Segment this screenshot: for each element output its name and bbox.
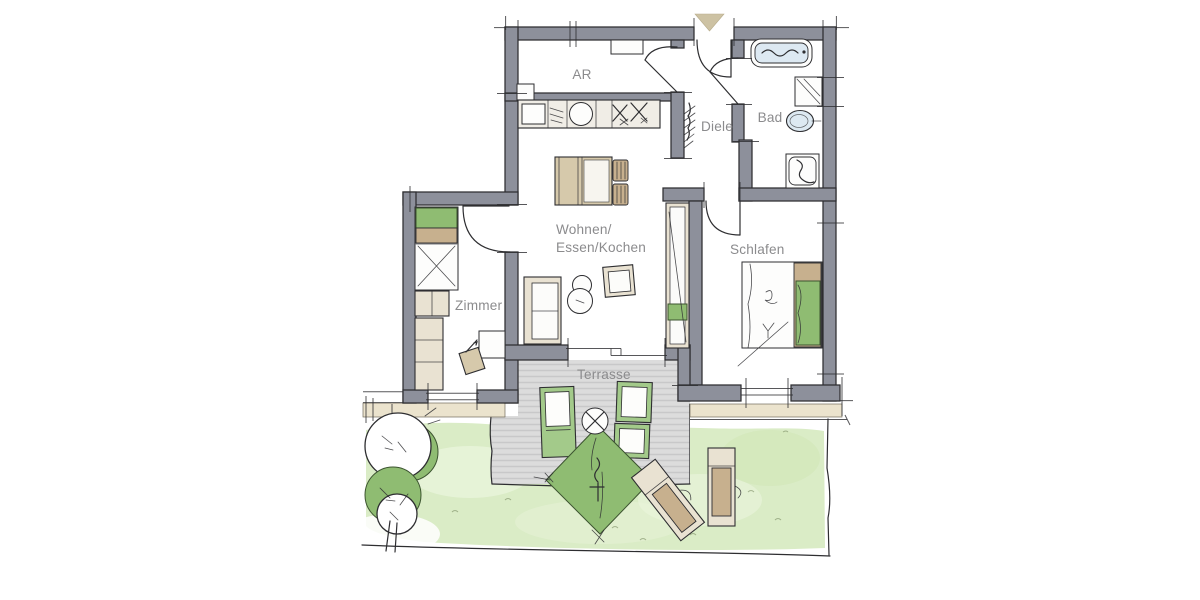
closet-icon xyxy=(415,318,443,390)
bathtub-icon xyxy=(751,39,812,67)
wall xyxy=(505,27,518,205)
wall xyxy=(734,27,836,40)
wall xyxy=(732,104,744,142)
wall xyxy=(739,188,836,201)
wall xyxy=(671,92,684,158)
wall xyxy=(663,188,704,201)
wall xyxy=(403,192,518,205)
room-label-ar: AR xyxy=(572,67,591,82)
wall xyxy=(403,390,428,403)
washbasin-icon xyxy=(787,111,822,132)
coat-rack-icon xyxy=(684,103,695,148)
bed-icon xyxy=(415,207,458,290)
room-label-schlafen: Schlafen xyxy=(730,242,785,257)
door-swing-icon xyxy=(463,206,510,252)
window-icon xyxy=(741,389,793,396)
coffee-table-icon xyxy=(568,276,593,314)
sink-basin-icon xyxy=(570,103,593,126)
chair-icon xyxy=(613,160,628,205)
door-swing-icon xyxy=(645,47,677,92)
room-label-wohnen-line2: Essen/Kochen xyxy=(556,240,646,255)
room-label-diele: Diele xyxy=(701,119,733,134)
sofa-icon xyxy=(524,277,561,344)
floor-plan-page: AR Diele Bad Wohnen/ Essen/Kochen Zimmer… xyxy=(0,0,1200,600)
garden-chair-icon xyxy=(540,386,576,457)
kitchen-sink-icon xyxy=(522,104,545,124)
wall xyxy=(403,192,416,403)
entrance-arrow-icon xyxy=(695,14,724,31)
schlafen-furniture xyxy=(738,262,822,366)
armchair-icon xyxy=(603,265,636,298)
floor-plan-drawing: AR Diele Bad Wohnen/ Essen/Kochen Zimmer… xyxy=(0,0,1200,600)
room-label-wohnen-line1: Wohnen/ xyxy=(556,222,612,237)
door-swing-icon xyxy=(697,40,731,77)
room-label-terrasse: Terrasse xyxy=(577,367,631,382)
wall xyxy=(678,385,741,401)
window-icon xyxy=(426,393,479,400)
wall xyxy=(505,27,694,40)
paving-strip-right xyxy=(690,404,842,417)
wall xyxy=(477,390,518,403)
kitchen-counter xyxy=(518,100,660,128)
double-bed-icon xyxy=(738,262,822,366)
paving-strip-left xyxy=(363,403,505,417)
wall xyxy=(505,252,518,403)
wardrobe-icon xyxy=(666,203,689,348)
wall xyxy=(505,345,568,360)
door-swing-icon xyxy=(710,58,738,104)
washing-machine-icon xyxy=(795,77,822,106)
wall xyxy=(823,27,836,401)
shower-icon xyxy=(786,154,819,188)
wall xyxy=(689,201,702,385)
sliding-door-icon xyxy=(566,349,667,356)
room-label-bad: Bad xyxy=(758,110,783,125)
desk-icon xyxy=(479,331,505,358)
dining-table-icon xyxy=(555,157,612,205)
door-swing-icon xyxy=(706,201,740,235)
wall xyxy=(791,385,840,401)
room-label-zimmer: Zimmer xyxy=(455,298,503,313)
